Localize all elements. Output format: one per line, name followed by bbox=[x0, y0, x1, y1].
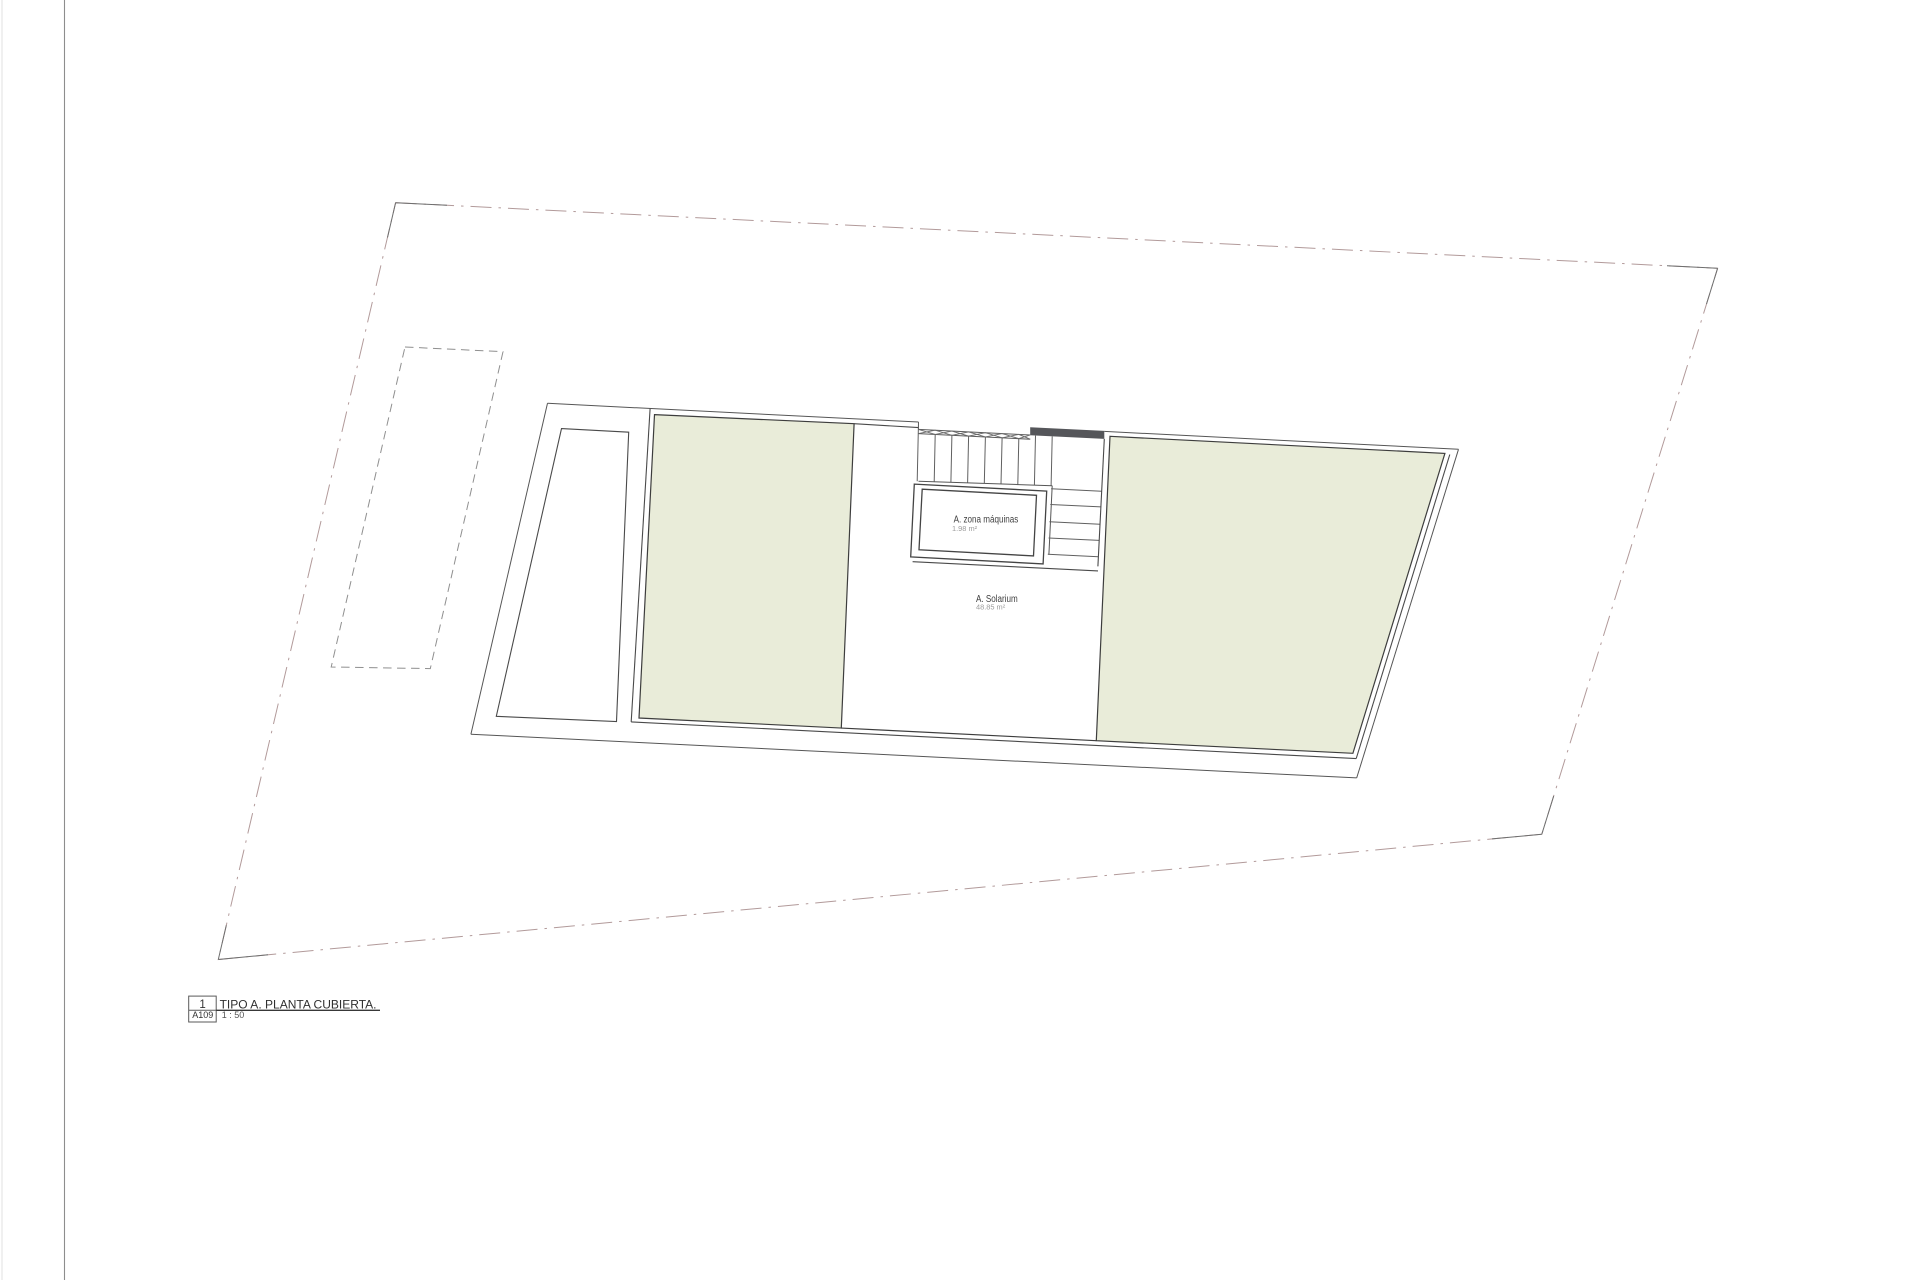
svg-text:1: 1 bbox=[199, 999, 205, 1011]
svg-text:A109: A109 bbox=[192, 1010, 213, 1020]
svg-text:1 : 50: 1 : 50 bbox=[222, 1010, 245, 1020]
svg-text:1.98 m²: 1.98 m² bbox=[952, 524, 978, 533]
svg-text:A. zona máquinas: A. zona máquinas bbox=[954, 514, 1019, 525]
svg-text:48.85 m²: 48.85 m² bbox=[976, 602, 1006, 611]
